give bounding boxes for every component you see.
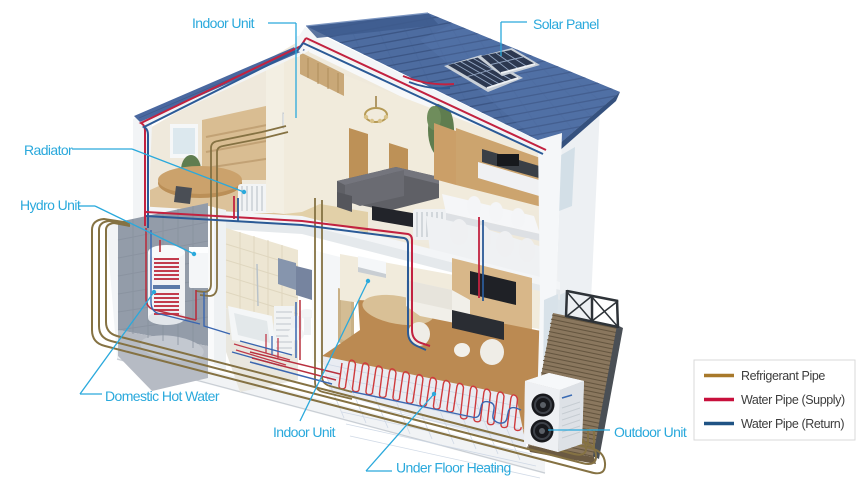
svg-text:Solar Panel: Solar Panel xyxy=(533,16,599,32)
svg-text:Under Floor Heating: Under Floor Heating xyxy=(396,460,511,476)
svg-text:Water Pipe (Return): Water Pipe (Return) xyxy=(741,417,844,431)
svg-text:Indoor Unit: Indoor Unit xyxy=(192,15,255,31)
svg-text:Outdoor Unit: Outdoor Unit xyxy=(614,424,687,440)
svg-text:Domestic Hot Water: Domestic Hot Water xyxy=(105,388,220,404)
svg-text:Radiator: Radiator xyxy=(24,142,73,158)
svg-text:Indoor Unit: Indoor Unit xyxy=(273,424,336,440)
svg-text:Hydro Unit: Hydro Unit xyxy=(20,197,81,213)
svg-text:Water Pipe (Supply): Water Pipe (Supply) xyxy=(741,393,845,407)
svg-text:Refrigerant Pipe: Refrigerant Pipe xyxy=(741,369,825,383)
